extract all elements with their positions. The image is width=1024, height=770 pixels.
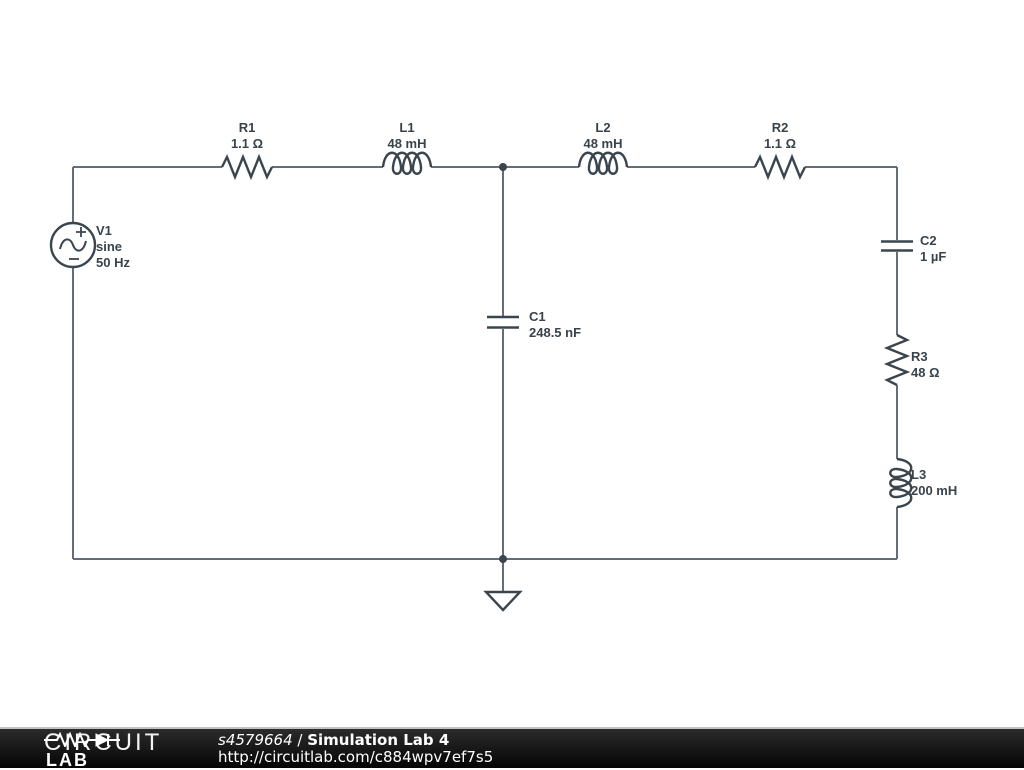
label-c2-name: C2 [920, 233, 946, 249]
junction-dot-top [499, 163, 507, 171]
label-l2-name: L2 [543, 120, 663, 136]
label-c1: C1 248.5 nF [529, 309, 581, 341]
label-c1-name: C1 [529, 309, 581, 325]
resistor-r1-symbol [222, 157, 272, 177]
circuit-drawing [0, 0, 1024, 727]
label-v1-kind: sine [96, 239, 130, 255]
inductor-l1-symbol [383, 153, 431, 174]
label-l2: L2 48 mH [543, 120, 663, 152]
label-r3: R3 48 Ω [911, 349, 940, 381]
label-r2-value: 1.1 Ω [720, 136, 840, 152]
label-r3-name: R3 [911, 349, 940, 365]
resistor-r2-symbol [755, 157, 805, 177]
label-l3: L3 200 mH [911, 467, 957, 499]
logo-lab-text: LAB [46, 753, 89, 768]
resistor-r3-symbol [887, 335, 907, 385]
label-l3-value: 200 mH [911, 483, 957, 499]
circuitlab-logo: CIRCUIT LAB [44, 732, 194, 768]
label-v1: V1 sine 50 Hz [96, 223, 130, 271]
footer-meta: s4579664 / Simulation Lab 4 http://circu… [218, 731, 493, 766]
voltage-source-v1-symbol [51, 223, 95, 267]
circuit-title: Simulation Lab 4 [307, 731, 449, 749]
schematic-canvas: R1 1.1 Ω L1 48 mH L2 48 mH R2 1.1 Ω V1 s… [0, 0, 1024, 768]
logo-schematic-icon [44, 732, 130, 747]
circuit-wires [73, 167, 897, 592]
ground-icon [486, 592, 520, 610]
label-l1: L1 48 mH [347, 120, 467, 152]
label-c2-value: 1 µF [920, 249, 946, 265]
footer-bar: CIRCUIT LAB s4579664 / Simulation Lab 4 … [0, 727, 1024, 768]
label-r2: R2 1.1 Ω [720, 120, 840, 152]
label-r1-name: R1 [187, 120, 307, 136]
label-l2-value: 48 mH [543, 136, 663, 152]
label-r2-name: R2 [720, 120, 840, 136]
label-r3-value: 48 Ω [911, 365, 940, 381]
label-r1: R1 1.1 Ω [187, 120, 307, 152]
capacitor-c2-symbol [881, 242, 913, 251]
label-v1-name: V1 [96, 223, 130, 239]
label-v1-value: 50 Hz [96, 255, 130, 271]
label-l1-value: 48 mH [347, 136, 467, 152]
title-separator: / [293, 731, 308, 749]
circuit-title-line: s4579664 / Simulation Lab 4 [218, 731, 493, 749]
label-c2: C2 1 µF [920, 233, 946, 265]
junction-dot-bottom [499, 555, 507, 563]
label-c1-value: 248.5 nF [529, 325, 581, 341]
inductor-l2-symbol [579, 153, 627, 174]
circuit-id: s4579664 [218, 731, 293, 749]
label-l1-name: L1 [347, 120, 467, 136]
circuit-url: http://circuitlab.com/c884wpv7ef7s5 [218, 749, 493, 766]
label-r1-value: 1.1 Ω [187, 136, 307, 152]
capacitor-c1-symbol [487, 317, 519, 328]
label-l3-name: L3 [911, 467, 957, 483]
inductor-l3-symbol [890, 459, 911, 507]
